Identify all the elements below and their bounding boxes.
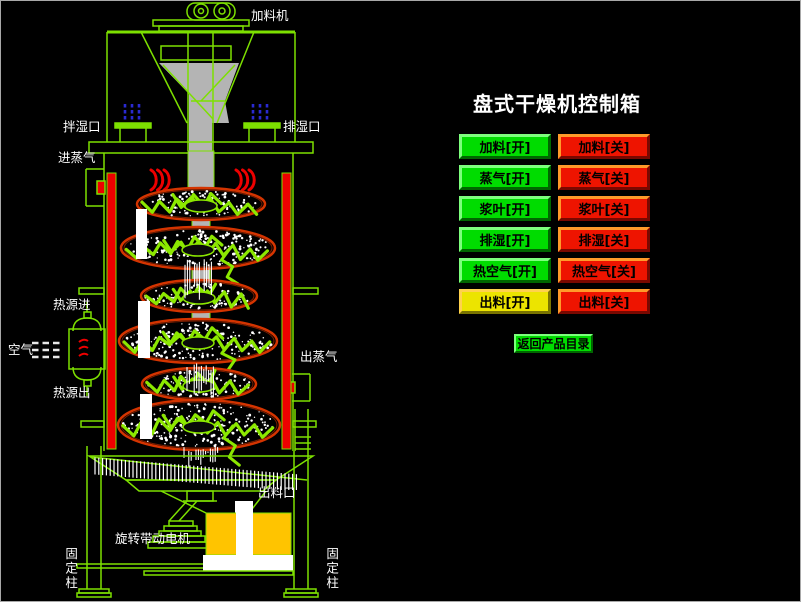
steam-off-button[interactable]: 蒸气[关]	[558, 165, 650, 190]
hot-air-off-button[interactable]: 热空气[关]	[558, 258, 650, 283]
fixed-column-left-label: 固定柱	[64, 547, 77, 591]
feeder-assembly	[107, 3, 295, 151]
steam-inlet-label: 进蒸气	[58, 151, 96, 164]
heat-source-out-label: 热源出	[53, 386, 91, 399]
steam-outlet-label: 出蒸气	[300, 350, 338, 363]
feeder-label: 加料机	[251, 9, 289, 22]
paddle-on-button[interactable]: 浆叶[开]	[459, 196, 551, 221]
discharge-off-button[interactable]: 出料[关]	[558, 289, 650, 314]
discharge-on-button[interactable]: 出料[开]	[459, 289, 551, 314]
wet-mix-port-label: 拌湿口	[63, 120, 101, 133]
discharge-port-label: 出料口	[258, 486, 296, 499]
fixed-column-right-label: 固定柱	[325, 547, 338, 591]
heat-exchanger	[69, 302, 105, 396]
drive-motor-label: 旋转带动电机	[115, 532, 190, 545]
steam-on-button[interactable]: 蒸气[开]	[459, 165, 551, 190]
feed-off-button[interactable]: 加料[关]	[558, 134, 650, 159]
dehumidify-on-button[interactable]: 排湿[开]	[459, 227, 551, 252]
hmi-screen: 加料机 拌湿口 排湿口 进蒸气 热源进 空气 热源出 出蒸气 出料口 旋转带动电…	[0, 0, 801, 602]
air-label: 空气	[8, 343, 33, 356]
control-button-grid: 加料[开] 加料[关] 蒸气[开] 蒸气[关] 浆叶[开] 浆叶[关] 排湿[开…	[459, 134, 650, 314]
paddle-off-button[interactable]: 浆叶[关]	[558, 196, 650, 221]
heat-source-in-label: 热源进	[53, 298, 91, 311]
feed-on-button[interactable]: 加料[开]	[459, 134, 551, 159]
moisture-exhaust-port-label: 排湿口	[283, 120, 321, 133]
hot-air-on-button[interactable]: 热空气[开]	[459, 258, 551, 283]
dehumidify-off-button[interactable]: 排湿[关]	[558, 227, 650, 252]
return-product-catalog-button[interactable]: 返回产品目录	[514, 334, 593, 353]
panel-title: 盘式干燥机控制箱	[449, 88, 665, 117]
